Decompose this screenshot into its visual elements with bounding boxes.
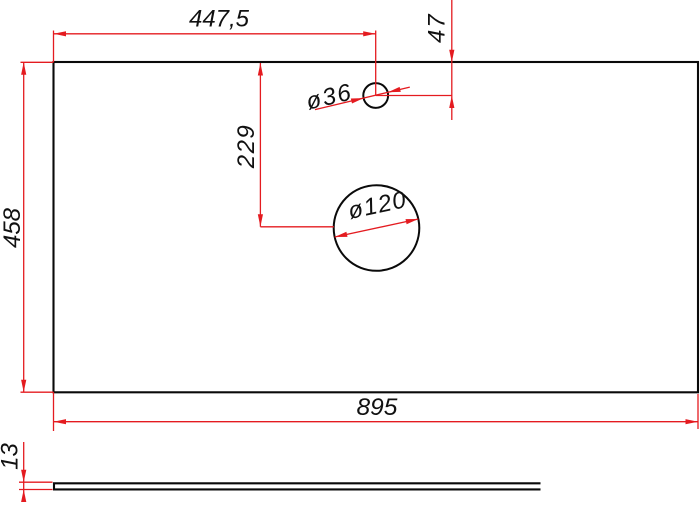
svg-text:13: 13 [0,443,24,470]
svg-text:47: 47 [424,13,451,43]
svg-text:458: 458 [0,207,26,248]
svg-text:895: 895 [357,394,398,421]
svg-text:229: 229 [233,124,260,170]
svg-text:447,5: 447,5 [189,6,250,33]
